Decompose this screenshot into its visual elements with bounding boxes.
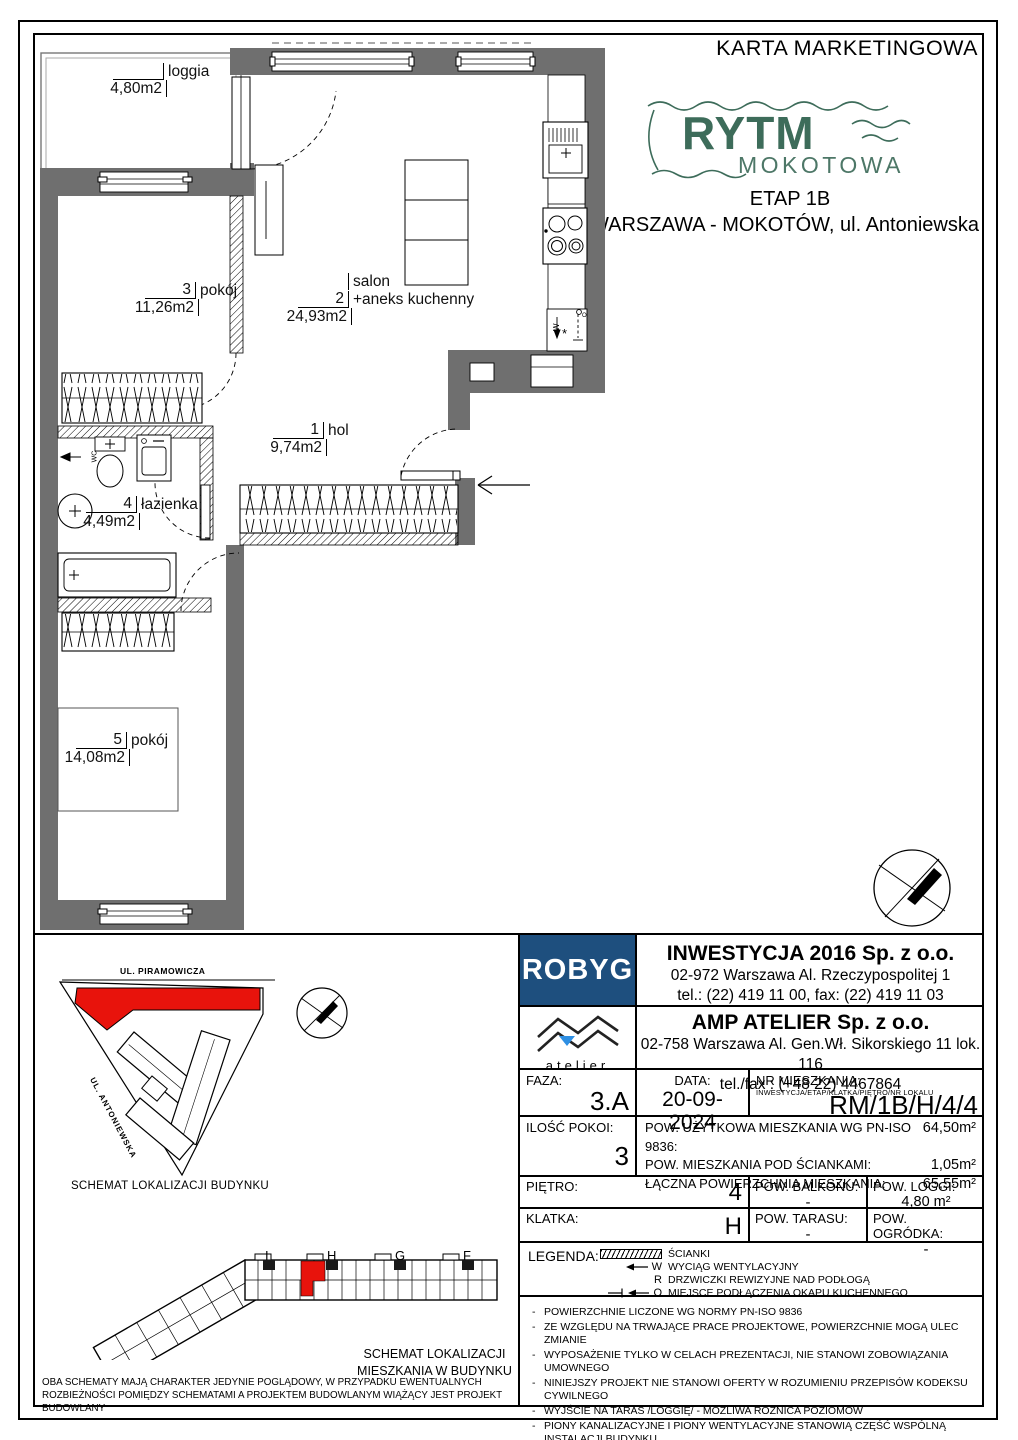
legend-symbol: W <box>652 1261 662 1273</box>
area-label: POW. UŻYTKOWA MIESZKANIA WG PN-ISO 9836: <box>645 1119 923 1156</box>
areas-cell: POW. UŻYTKOWA MIESZKANIA WG PN-ISO 9836:… <box>637 1117 984 1177</box>
building-plan-caption: SCHEMAT LOKALIZACJI MIESZKANIA W BUDYNKU <box>347 1346 522 1380</box>
architect-info: AMP ATELIER Sp. z o.o. 02-758 Warszawa A… <box>637 1007 984 1070</box>
note-bullet <box>530 1349 544 1375</box>
atelier-logo-icon <box>528 1009 628 1053</box>
room-name: łazienka <box>136 496 198 513</box>
building-plan-drawing <box>55 1245 510 1360</box>
pietro-label: PIĘTRO: <box>526 1179 578 1194</box>
note-item: PIONY KANALIZACYJNE I PIONY WENTYLACYJNE… <box>530 1420 974 1440</box>
room-area: 4,49m2 <box>86 513 140 530</box>
note-item: WYJŚCIE NA TARAS /LOGGIĘ/ - MOŻLIWA RÓŻN… <box>530 1405 974 1418</box>
developer-phone: tel.: (22) 419 11 00, fax: (22) 419 11 0… <box>637 986 984 1006</box>
vent-o-symbol: O <box>582 313 587 319</box>
klatka-value: H <box>725 1215 742 1239</box>
architect-logo: atelier <box>520 1007 637 1070</box>
room-number: 5 <box>76 731 126 749</box>
developer-info: INWESTYCJA 2016 Sp. z o.o. 02-972 Warsza… <box>637 935 984 1007</box>
note-bullet <box>530 1405 544 1418</box>
wc-arrow-icon <box>61 453 81 461</box>
wc-label: WC <box>91 451 98 463</box>
note-item: WYPOSAŻENIE TYLKO W CELACH PREZENTACJI, … <box>530 1349 974 1375</box>
developer-logo-text: ROBYG <box>522 954 633 987</box>
room-area: 24,93m2 <box>298 308 352 325</box>
legend-label: LEGENDA: <box>528 1248 599 1264</box>
pietro-cell: PIĘTRO: 4 <box>520 1177 750 1209</box>
note-text: PIONY KANALIZACYJNE I PIONY WENTYLACYJNE… <box>544 1420 974 1440</box>
marketing-card-page: KARTA MARKETINGOWA RYTM MOKOTOWA ETAP 1B… <box>0 0 1018 1440</box>
room-name: pokój <box>126 732 168 749</box>
balkon-label: POW. BALKONU: <box>755 1179 861 1194</box>
note-bullet <box>530 1420 544 1440</box>
floor-plan-drawing: W * O <box>33 33 984 933</box>
street-label-piramowicza: UL. PIRAMOWICZA <box>120 966 205 976</box>
balkon-cell: POW. BALKONU: - <box>750 1177 868 1209</box>
klatka-label: KLATKA: <box>526 1211 579 1226</box>
room-name: hol <box>323 422 349 439</box>
site-plan: UL. PIRAMOWICZA UL. ANTONIEWSKA SCHEMAT … <box>40 950 370 1205</box>
nr-cell: NR MIESZKANIA: INWESTYCJA/ETAP/KLATKA/PI… <box>750 1070 984 1117</box>
note-item: ZE WZGLĘDU NA TRWAJĄCE PRACE PROJEKTOWE,… <box>530 1321 974 1347</box>
developer-address: 02-972 Warszawa Al. Rzeczypospolitej 1 <box>637 966 984 986</box>
legend-item-scianki: ŚCIANKI <box>598 1247 978 1260</box>
klatka-cell: KLATKA: H <box>520 1209 750 1243</box>
room-area: 9,74m2 <box>273 439 327 456</box>
arrow-left-icon <box>625 1262 649 1272</box>
room-label-hol: 1hol 9,74m2 <box>273 421 349 456</box>
note-bullet <box>530 1321 544 1347</box>
area-value: 64,50m² <box>923 1119 976 1156</box>
area-value: 1,05m² <box>931 1156 976 1175</box>
building-plan: I H G F <box>55 1245 510 1360</box>
legend: LEGENDA: ŚCIANKI W WYCIĄG WENTYLACYJNY R… <box>520 1243 984 1297</box>
schematics-disclaimer: OBA SCHEMATY MAJĄ CHARAKTER JEDYNIE POGL… <box>42 1376 520 1415</box>
room-name: pokój <box>195 282 237 299</box>
taras-value: - <box>755 1226 861 1243</box>
site-plan-drawing <box>40 950 370 1205</box>
compass-icon <box>874 850 950 926</box>
note-text: WYJŚCIE NA TARAS /LOGGIĘ/ - MOŻLIWA RÓŻN… <box>544 1405 863 1418</box>
svg-text:*: * <box>562 326 567 341</box>
note-item: NINIEJSZY PROJEKT NIE STANOWI OFERTY W R… <box>530 1377 974 1403</box>
room-area: 11,26m2 <box>145 299 199 316</box>
area-label: POW. MIESZKANIA POD ŚCIANKAMI: <box>645 1156 871 1175</box>
legend-text: ŚCIANKI <box>668 1248 710 1260</box>
entry-arrow-icon <box>478 476 530 494</box>
rooms-count-label: ILOŚĆ POKOI: <box>526 1120 629 1135</box>
data-cell: DATA: 20-09-2024 <box>637 1070 750 1117</box>
room-name: loggia <box>163 63 209 80</box>
legend-item-wyciag: W WYCIĄG WENTYLACYJNY <box>598 1260 978 1273</box>
site-compass-icon <box>297 988 347 1038</box>
note-text: POWIERZCHNIE LICZONE WG NORMY PN-ISO 983… <box>544 1306 802 1319</box>
site-plan-caption: SCHEMAT LOKALIZACJI BUDYNKU <box>45 1180 295 1192</box>
ogrodek-label: POW. OGRÓDKA: <box>873 1211 979 1241</box>
data-label: DATA: <box>641 1073 744 1088</box>
room-label-salon: salon 2+aneks kuchenny 24,93m2 <box>298 273 474 325</box>
room-label-loggia: loggia 4,80m2 <box>113 63 209 97</box>
note-text: NINIEJSZY PROJEKT NIE STANOWI OFERTY W R… <box>544 1377 974 1403</box>
room-number: 4 <box>86 495 136 513</box>
note-text: ZE WZGLĘDU NA TRWAJĄCE PRACE PROJEKTOWE,… <box>544 1321 974 1347</box>
rooms-count-value: 3 <box>526 1143 629 1169</box>
area-row-scianki: POW. MIESZKANIA POD ŚCIANKAMI: 1,05m² <box>645 1156 976 1175</box>
floor-plan: W * O <box>33 33 984 933</box>
rooms-count-cell: ILOŚĆ POKOI: 3 <box>520 1117 637 1177</box>
taras-label: POW. TARASU: <box>755 1211 861 1226</box>
ogrodek-cell: POW. OGRÓDKA: - <box>868 1209 984 1243</box>
staircase-label-g: G <box>395 1248 405 1263</box>
loggia-cell: POW. LOGGI: 4,80 m² <box>868 1177 984 1209</box>
area-row-uzytkowa: POW. UŻYTKOWA MIESZKANIA WG PN-ISO 9836:… <box>645 1119 976 1156</box>
building-plan-caption-line1: SCHEMAT LOKALIZACJI <box>347 1346 522 1363</box>
room-number: 1 <box>273 421 323 439</box>
note-bullet <box>530 1377 544 1403</box>
architect-address: 02-758 Warszawa Al. Gen.Wł. Sikorskiego … <box>637 1035 984 1075</box>
room-area: 4,80m2 <box>113 80 167 97</box>
room-label-pokoj-3: 3pokój 11,26m2 <box>145 281 237 316</box>
note-item: POWIERZCHNIE LICZONE WG NORMY PN-ISO 983… <box>530 1306 974 1319</box>
loggia-value: 4,80 m² <box>873 1194 979 1210</box>
info-table: ROBYG INWESTYCJA 2016 Sp. z o.o. 02-972 … <box>520 935 984 1405</box>
nr-label: NR MIESZKANIA: <box>756 1073 978 1088</box>
loggia-label: POW. LOGGI: <box>873 1179 979 1194</box>
legend-symbol: R <box>654 1274 662 1286</box>
pietro-value: 4 <box>729 1181 742 1205</box>
wall-hatch-swatch <box>600 1249 662 1259</box>
legend-text: DRZWICZKI REWIZYJNE NAD PODŁOGĄ <box>668 1274 870 1286</box>
staircase-label-i: I <box>265 1248 269 1263</box>
room-name-pre: salon <box>348 273 390 290</box>
room-number: 2 <box>298 290 348 308</box>
room-label-pokoj-5: 5pokój 14,08m2 <box>76 731 168 766</box>
staircase-label-h: H <box>327 1248 336 1263</box>
faza-value: 3.A <box>526 1088 629 1114</box>
developer-name: INWESTYCJA 2016 Sp. z o.o. <box>637 941 984 966</box>
room-name: +aneks kuchenny <box>348 291 474 308</box>
developer-logo: ROBYG <box>520 935 637 1007</box>
room-label-lazienka: 4łazienka 4,49m2 <box>86 495 198 530</box>
staircase-label-f: F <box>463 1248 471 1263</box>
notes: POWIERZCHNIE LICZONE WG NORMY PN-ISO 983… <box>520 1297 984 1405</box>
taras-cell: POW. TARASU: - <box>750 1209 868 1243</box>
note-bullet <box>530 1306 544 1319</box>
room-number: 3 <box>145 281 195 299</box>
note-text: WYPOSAŻENIE TYLKO W CELACH PREZENTACJI, … <box>544 1349 974 1375</box>
room-area: 14,08m2 <box>76 749 130 766</box>
legend-text: WYCIĄG WENTYLACYJNY <box>668 1261 799 1273</box>
faza-cell: FAZA: 3.A <box>520 1070 637 1117</box>
architect-name: AMP ATELIER Sp. z o.o. <box>637 1010 984 1035</box>
legend-item-rewizja: R DRZWICZKI REWIZYJNE NAD PODŁOGĄ <box>598 1273 978 1286</box>
